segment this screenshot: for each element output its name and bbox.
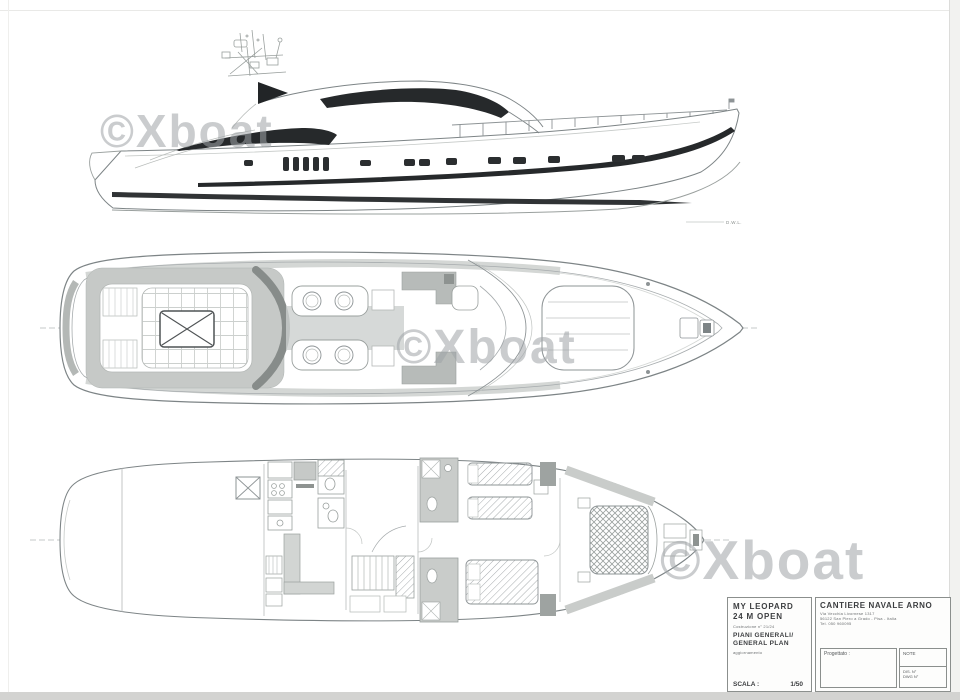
note-label: NOTE	[900, 649, 946, 667]
lower-deck-plan	[30, 458, 730, 622]
arch-fin	[258, 82, 288, 104]
scale-value: 1/50	[790, 681, 803, 688]
general-arrangement-drawing: D.W.L.	[0, 0, 960, 700]
construction-number: Costruzione n° 21/24	[733, 624, 807, 629]
hardtop-glazing	[320, 88, 509, 118]
radar-mast-icon	[222, 30, 286, 76]
boat-model: 24 M OPEN	[733, 612, 807, 622]
revision-note: aggiornamento	[733, 650, 807, 655]
shipyard-name: CANTIERE NAVALE ARNO	[820, 601, 947, 611]
deck-hatch	[236, 477, 260, 499]
waterline-label: D.W.L.	[726, 220, 742, 225]
vip-bed	[590, 506, 648, 574]
drawing-sheet: { "sheet": { "watermark": { "text": "©Xb…	[0, 0, 960, 700]
drawing-title-en: GENERAL PLAN	[733, 640, 807, 648]
title-block: MY LEOPARD 24 M OPEN Costruzione n° 21/2…	[727, 597, 951, 692]
drawing-number-cell: DIS. N° DWG N°	[900, 667, 946, 687]
scale-label: SCALA :	[733, 681, 759, 688]
main-deck-plan	[40, 252, 758, 404]
scale-row: SCALA : 1/50	[733, 681, 807, 688]
foredeck-sunpad	[542, 286, 634, 370]
side-profile-view: D.W.L.	[90, 30, 742, 225]
title-block-shipyard: CANTIERE NAVALE ARNO Via Vecchia Livorne…	[815, 597, 951, 692]
designed-by-cell: Progettato :	[820, 648, 897, 688]
cockpit-table	[160, 311, 214, 347]
shipyard-address-3: Tel. 050 960095	[820, 621, 947, 626]
boat-name: MY LEOPARD	[733, 602, 807, 612]
drawing-no-label-en: DWG N°	[903, 674, 943, 679]
drawing-title-it: PIANI GENERALI/	[733, 632, 807, 640]
title-block-project: MY LEOPARD 24 M OPEN Costruzione n° 21/2…	[727, 597, 812, 692]
hardtop-roofline	[258, 81, 543, 127]
notes-cell: NOTE DIS. N° DWG N°	[899, 648, 947, 688]
